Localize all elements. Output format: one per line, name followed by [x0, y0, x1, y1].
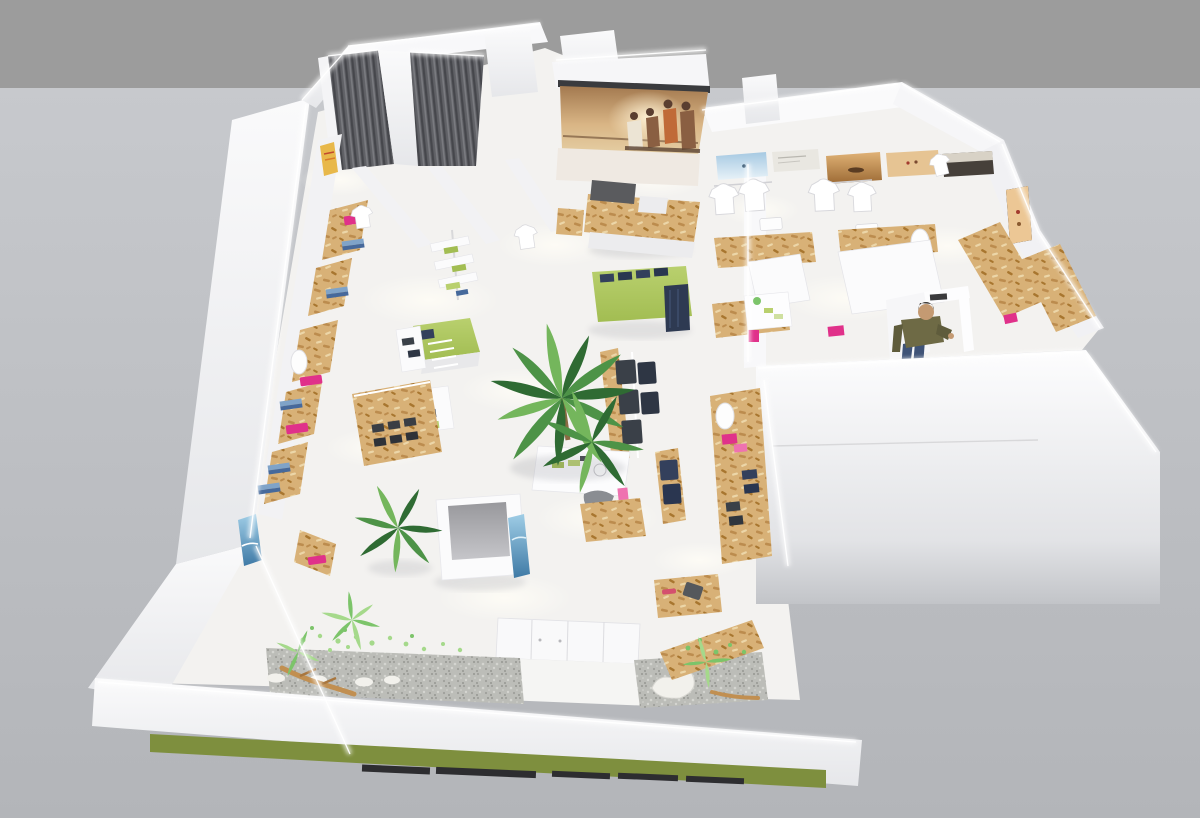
lime-table-3: [588, 266, 692, 339]
stepping-stone: [355, 677, 373, 686]
poster-surfer-figure: [742, 164, 746, 168]
osb-shoe-panel: [352, 380, 442, 466]
counter-white-top: [638, 196, 668, 214]
counter-dark-top: [590, 180, 636, 204]
media-screen-block: [552, 54, 710, 258]
store-floorplan-render: [0, 0, 1200, 818]
osb-base: [580, 498, 646, 542]
poster-side-warm2: [1006, 186, 1032, 244]
fitting-stall-curtain-2: [410, 52, 484, 166]
column-opening: [448, 502, 510, 560]
hanging-denim-side: [664, 284, 690, 332]
screen-base: [556, 148, 700, 186]
poster-pale-text: [772, 149, 820, 172]
potted-plant-small: [753, 297, 761, 305]
green-card: [774, 314, 783, 319]
shopper-head: [918, 304, 934, 320]
dark-stack: [726, 501, 741, 511]
exterior-slab: [756, 350, 1160, 604]
roof-box-1: [484, 28, 538, 97]
counter-side-cube: [556, 208, 584, 236]
pink-stack: [734, 443, 748, 452]
green-card: [764, 308, 773, 313]
folded-tee-stack-1: [760, 217, 783, 231]
mannequin-torso-left: [291, 350, 307, 374]
render-stage: [0, 0, 1200, 818]
dark-stack: [729, 515, 744, 525]
poster-surfer-blue: [716, 152, 768, 180]
stair-column: [434, 494, 530, 591]
stepping-stone: [267, 673, 285, 682]
door-sign: [930, 293, 947, 300]
mannequin-torso-divider: [716, 403, 734, 429]
slab-face: [756, 350, 1160, 604]
navy-stack: [742, 469, 758, 480]
pink-stack: [722, 433, 738, 445]
stepping-stone: [384, 676, 400, 684]
shopper-hand: [948, 333, 954, 339]
magenta-drawer-2: [828, 325, 845, 337]
poster-boat-shape: [848, 167, 864, 172]
navy-stack: [744, 483, 760, 494]
